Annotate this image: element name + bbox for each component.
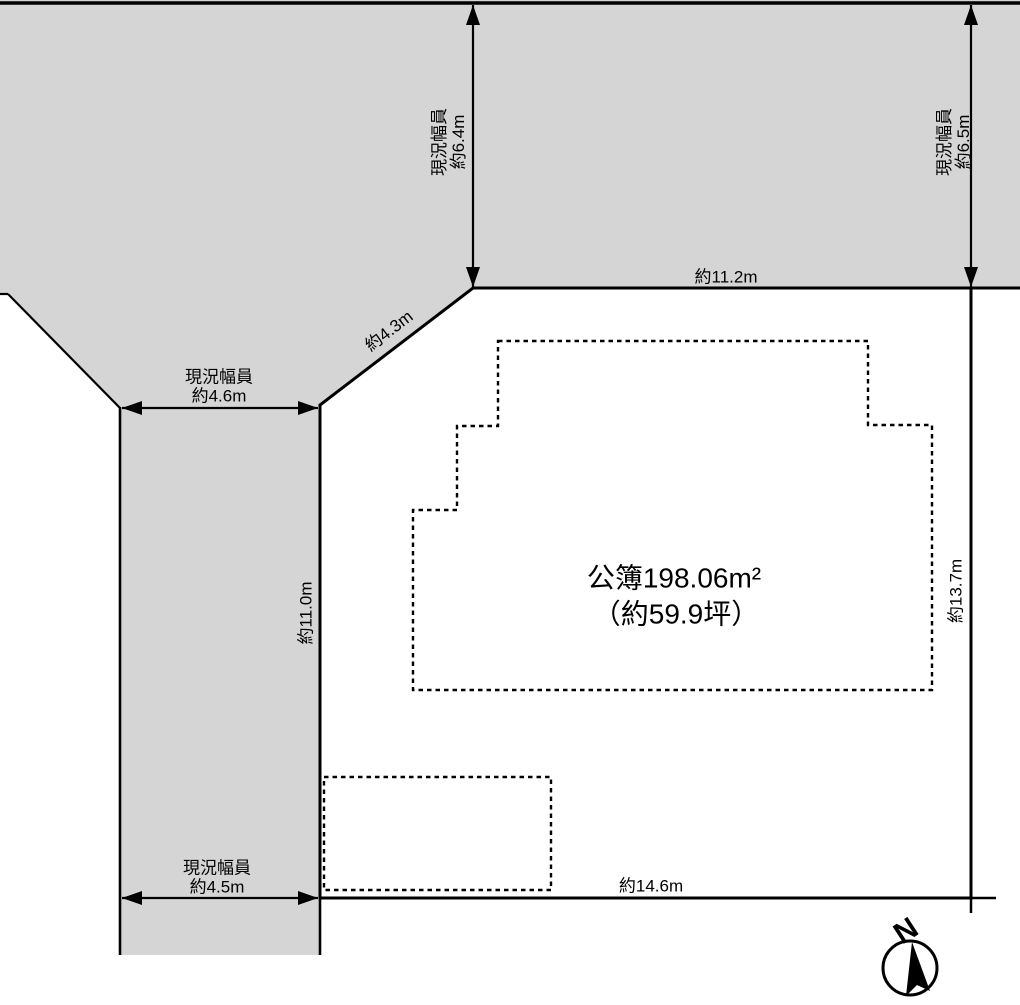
road-width-label-top-left-l1: 現況幅員 — [430, 108, 449, 176]
road-width-label-west-lower-l1: 現況幅員 — [183, 859, 251, 878]
road-width-label-top-right-l1: 現況幅員 — [935, 108, 954, 176]
edge-label-south: 約14.6m — [619, 877, 683, 896]
site-plan: 現況幅員 約6.4m 現況幅員 約6.5m 現況幅員 約4.6m 現況幅員 約4… — [0, 0, 1020, 1000]
parcel-area-tsubo-text: （約59.9坪） — [593, 599, 760, 630]
land-plot-diagram: 現況幅員 約6.4m 現況幅員 約6.5m 現況幅員 約4.6m 現況幅員 約4… — [0, 0, 1020, 1000]
parcel-area-text: 公簿198.06m² — [587, 563, 761, 594]
road-width-label-west-upper-l2: 約4.6m — [192, 387, 247, 406]
road-width-label-west-lower-l2: 約4.5m — [190, 878, 245, 897]
road-width-label-top-left-l2: 約6.4m — [449, 115, 468, 170]
edge-label-west: 約11.0m — [297, 582, 316, 645]
edge-label-north: 約11.2m — [695, 268, 758, 287]
edge-label-east: 約13.7m — [947, 559, 966, 623]
road-width-label-top-right-l2: 約6.5m — [954, 115, 973, 170]
road-width-label-west-upper-l1: 現況幅員 — [185, 368, 253, 387]
